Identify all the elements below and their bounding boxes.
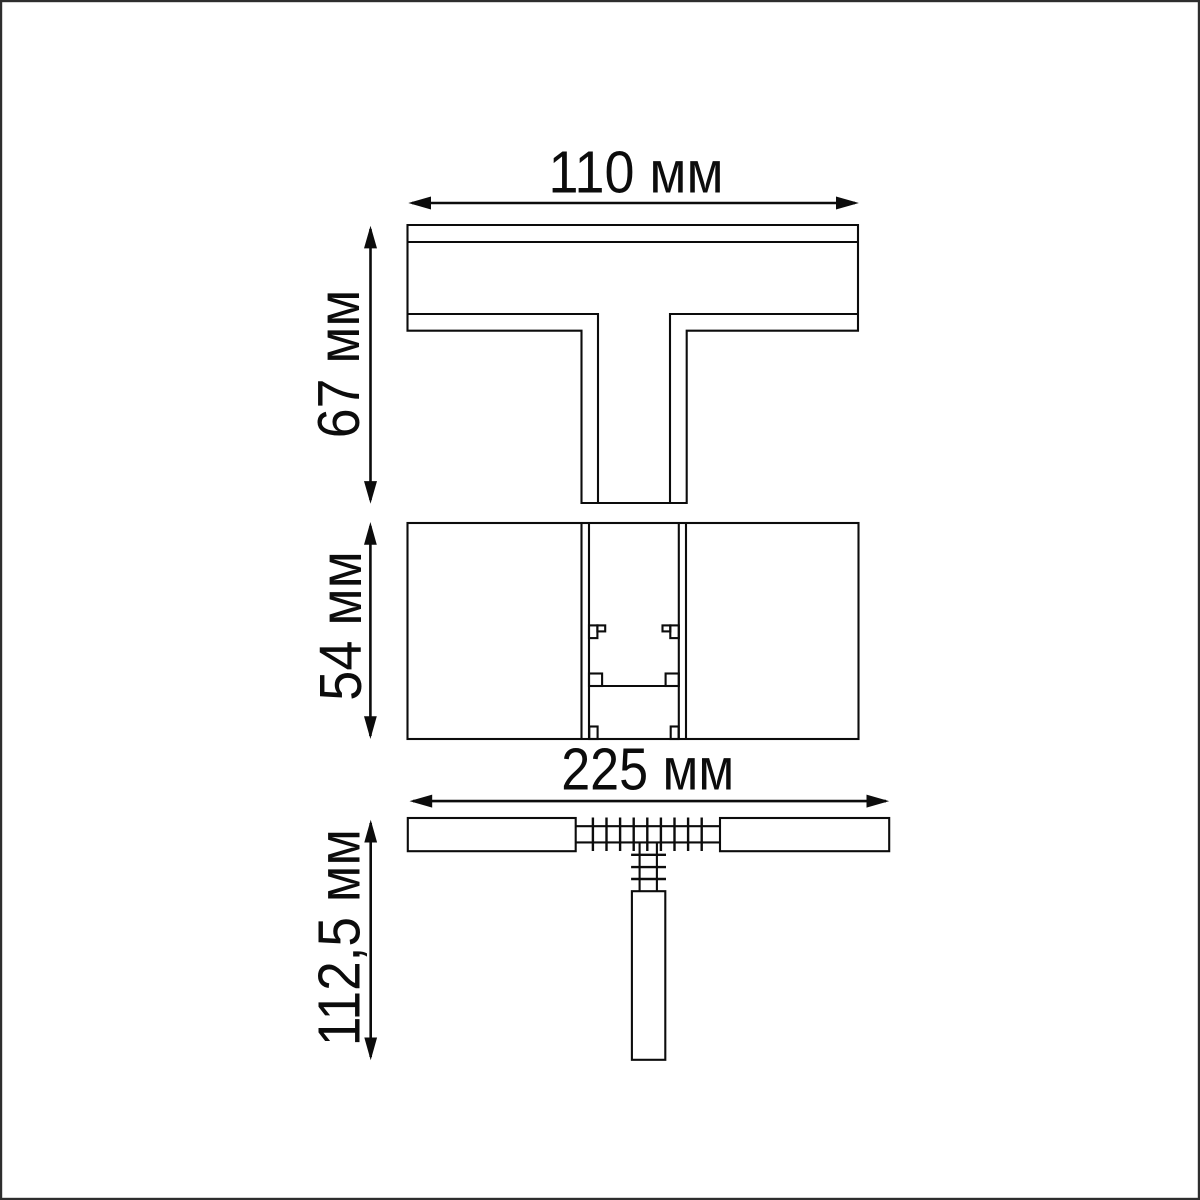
svg-text:110 мм: 110 мм bbox=[549, 140, 724, 206]
svg-text:67 мм: 67 мм bbox=[306, 290, 372, 439]
svg-text:225 мм: 225 мм bbox=[561, 737, 734, 803]
svg-text:112,5 мм: 112,5 мм bbox=[307, 829, 373, 1046]
svg-text:54 мм: 54 мм bbox=[308, 551, 374, 701]
